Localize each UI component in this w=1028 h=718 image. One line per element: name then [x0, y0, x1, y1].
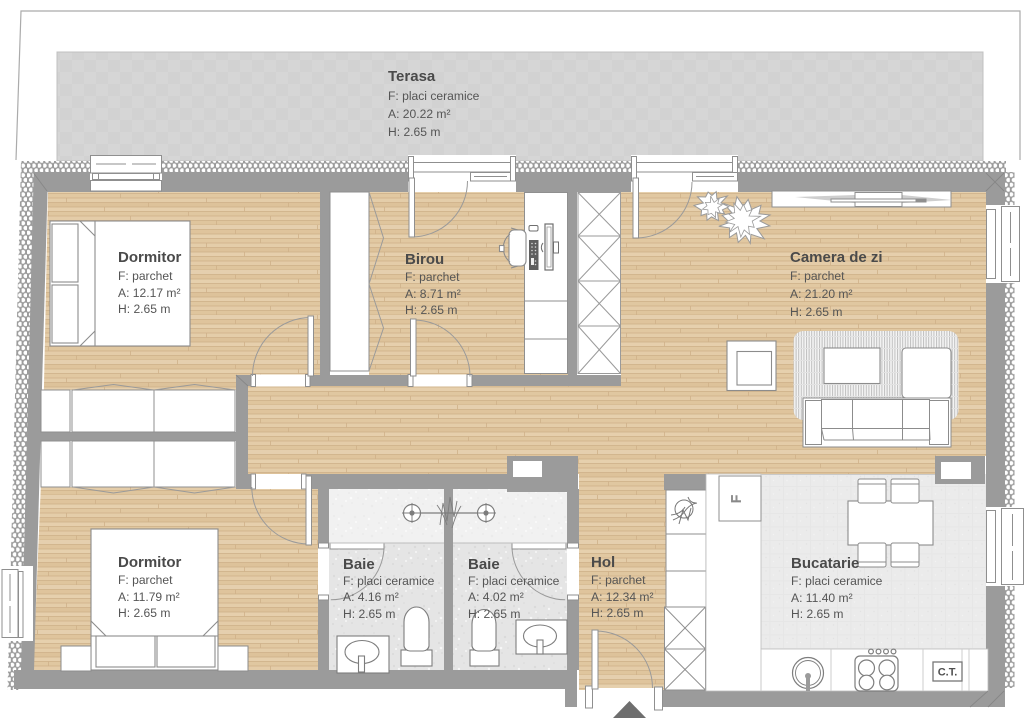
svg-text:Birou: Birou — [405, 251, 444, 268]
svg-text:H: 2.65 m: H: 2.65 m — [468, 607, 520, 621]
svg-text:Baie: Baie — [468, 556, 500, 573]
svg-text:F: parchet: F: parchet — [591, 573, 646, 587]
svg-text:A: 4.02 m²: A: 4.02 m² — [468, 590, 524, 604]
svg-text:A: 8.71 m²: A: 8.71 m² — [405, 287, 461, 301]
svg-text:F: placi ceramice: F: placi ceramice — [791, 574, 883, 588]
svg-text:H: 2.65 m: H: 2.65 m — [343, 607, 395, 621]
svg-text:Camera de zi: Camera de zi — [790, 249, 883, 266]
svg-text:Dormitor: Dormitor — [118, 249, 181, 266]
svg-text:Hol: Hol — [591, 554, 615, 571]
svg-text:A: 12.17 m²: A: 12.17 m² — [118, 286, 181, 300]
svg-text:F: placi ceramice: F: placi ceramice — [468, 574, 560, 588]
svg-text:A: 11.79 m²: A: 11.79 m² — [118, 590, 180, 604]
svg-text:H: 2.65 m: H: 2.65 m — [791, 607, 843, 621]
svg-text:A: 11.40 m²: A: 11.40 m² — [791, 591, 853, 605]
svg-text:H: 2.65 m: H: 2.65 m — [388, 125, 440, 139]
svg-text:F: parchet: F: parchet — [118, 269, 173, 283]
svg-text:Dormitor: Dormitor — [118, 554, 181, 571]
svg-text:H: 2.65 m: H: 2.65 m — [118, 606, 170, 620]
svg-text:Terasa: Terasa — [388, 68, 436, 85]
svg-text:H: 2.65 m: H: 2.65 m — [591, 606, 643, 620]
svg-text:F: placi ceramice: F: placi ceramice — [388, 89, 480, 103]
svg-text:F: F — [728, 495, 743, 503]
svg-text:H: 2.65 m: H: 2.65 m — [790, 305, 842, 319]
svg-text:C.T.: C.T. — [938, 667, 958, 679]
svg-text:F: parchet: F: parchet — [790, 269, 845, 283]
svg-text:H: 2.65 m: H: 2.65 m — [118, 302, 170, 316]
svg-text:A: 4.16 m²: A: 4.16 m² — [343, 590, 399, 604]
svg-text:F: parchet: F: parchet — [118, 573, 173, 587]
svg-text:A: 21.20 m²: A: 21.20 m² — [790, 287, 853, 301]
svg-text:A: 20.22 m²: A: 20.22 m² — [388, 107, 451, 121]
svg-text:F: parchet: F: parchet — [405, 270, 460, 284]
svg-text:H: 2.65 m: H: 2.65 m — [405, 303, 457, 317]
svg-text:Baie: Baie — [343, 556, 375, 573]
svg-text:A: 12.34 m²: A: 12.34 m² — [591, 590, 654, 604]
svg-text:Bucatarie: Bucatarie — [791, 555, 859, 572]
svg-text:F: placi ceramice: F: placi ceramice — [343, 574, 435, 588]
